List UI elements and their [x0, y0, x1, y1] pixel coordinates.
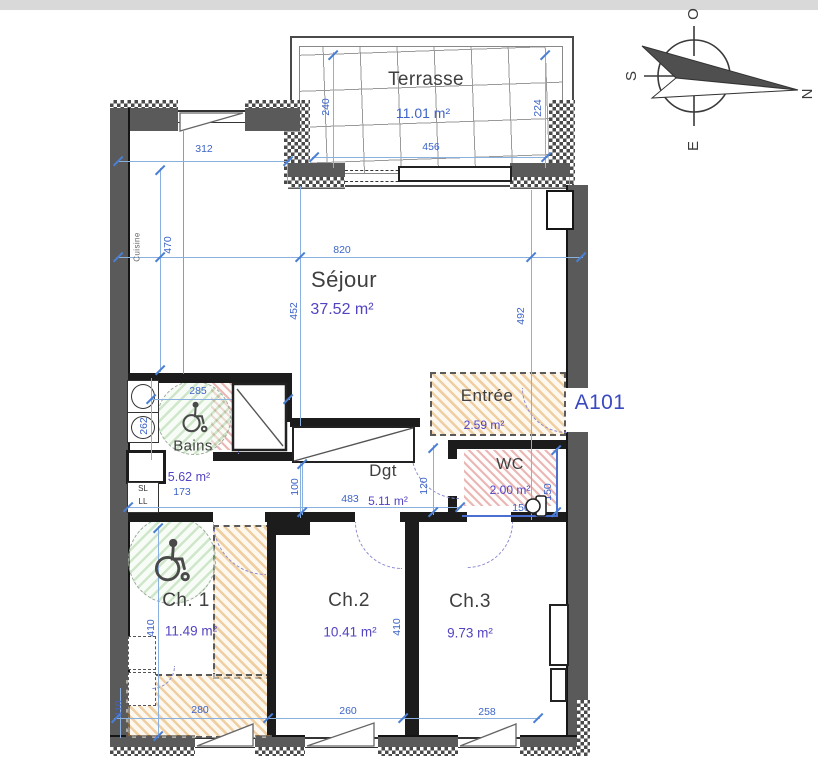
dim-483: 483	[341, 493, 359, 505]
south-window-1-glazing	[195, 737, 255, 748]
ch3-area: 9.73 m²	[447, 626, 493, 641]
dim-240: 240	[320, 98, 332, 116]
entree-label: Entrée	[461, 386, 514, 406]
wc-label: WC	[496, 456, 523, 474]
compass-north-label: N	[799, 89, 816, 100]
bay-right-stub-insulation	[510, 177, 570, 188]
ch1-label: Ch. 1	[162, 590, 209, 612]
compass-rose: O S E N	[612, 2, 818, 162]
ch3-niche	[550, 668, 567, 702]
wc-area: 2.00 m²	[490, 483, 531, 497]
laundry-closet: SL LL	[127, 482, 159, 513]
sliding-door-panel	[398, 166, 512, 182]
dim-line-483	[128, 507, 462, 508]
terrasse-area: 11.01 m²	[396, 105, 450, 121]
laundry-sl-label: SL	[128, 484, 158, 493]
ch2-pilaster	[274, 522, 310, 535]
bains-area: 5.62 m²	[168, 470, 210, 484]
dim-258: 258	[478, 706, 496, 718]
ch1-area: 11.49 m²	[165, 624, 217, 639]
ch2-area: 10.41 m²	[323, 625, 376, 640]
dim-820: 820	[333, 244, 351, 256]
bains-label: Bains	[173, 438, 213, 455]
dim-150-width: 150	[512, 502, 530, 514]
kitchen-appliance	[126, 450, 166, 484]
dim-line-262	[151, 378, 152, 460]
dim-285: 285	[189, 385, 207, 397]
dim-280: 280	[191, 704, 209, 716]
ch2-door-arc	[355, 522, 402, 569]
dim-line-452	[300, 186, 301, 518]
dim-line-bottom	[114, 718, 540, 719]
south-insulation-3	[378, 747, 458, 756]
ch1-closet-1	[128, 636, 156, 670]
dgt-closet-diagonal	[294, 428, 413, 461]
closet-north-wall	[290, 418, 420, 427]
sejour-area: 37.52 m²	[310, 301, 373, 319]
south-window-2-glazing	[305, 737, 378, 748]
dim-492: 492	[515, 307, 527, 325]
dim-224: 224	[532, 99, 544, 117]
floor-plan-canvas: SL LL 312 470 820 452 492 240 224 456 28…	[0, 0, 818, 768]
northeast-pillar	[546, 190, 574, 230]
dim-line-492	[531, 190, 532, 520]
compass-east-label: E	[685, 141, 702, 151]
dim-line-410-ch1	[158, 526, 159, 738]
bains-door-arc	[238, 407, 285, 454]
dim-410-ch2: 410	[391, 618, 403, 636]
north-window-glazing	[178, 110, 245, 123]
ch3-door-arc	[467, 522, 513, 568]
wc-north-wall	[448, 440, 566, 449]
dim-line-240	[333, 52, 334, 168]
dim-line-224	[545, 52, 546, 168]
dgt-closet	[293, 427, 414, 462]
dgt-area: 5.11 m²	[368, 494, 408, 508]
bay-left-stub-insulation	[288, 177, 345, 188]
entree-area: 2.59 m²	[464, 418, 505, 432]
ch1-ch2-partition	[267, 522, 276, 735]
terrasse-label: Terrasse	[388, 69, 464, 91]
corridor-wall-2	[265, 512, 355, 522]
dim-150-depth: 150	[542, 483, 554, 501]
dim-line-312	[118, 161, 290, 162]
sejour-label: Séjour	[311, 267, 377, 293]
dim-line-120	[433, 445, 434, 515]
dim-line-456	[312, 157, 548, 158]
east-wall-lower	[566, 432, 588, 745]
dgt-label: Dgt	[369, 461, 397, 481]
kitchen-counter-edge	[183, 131, 184, 374]
compass-south-label: S	[623, 71, 640, 81]
dim-line-470	[160, 168, 161, 372]
dim-262: 262	[138, 417, 150, 435]
dim-line-150h	[556, 448, 558, 515]
compass-west-label: O	[685, 8, 702, 20]
dim-line-100	[302, 462, 303, 515]
dim-120: 120	[418, 477, 430, 495]
north-wall-right	[245, 108, 300, 131]
south-insulation-1	[110, 747, 195, 756]
dim-410-ch1: 410	[145, 619, 157, 637]
dim-452: 452	[288, 302, 300, 320]
ch2-label: Ch.2	[328, 590, 370, 612]
south-insulation-2	[255, 747, 305, 756]
southeast-insulation-wrap	[577, 700, 590, 756]
dim-line-285	[152, 399, 290, 400]
dim-456: 456	[422, 141, 440, 153]
south-window-3-glazing	[458, 737, 520, 748]
dim-100: 100	[289, 478, 301, 496]
dim-line-820	[118, 257, 583, 258]
ch3-radiator	[549, 604, 569, 666]
dim-260: 260	[339, 705, 357, 717]
dim-line-150w	[462, 515, 558, 517]
dim-312: 312	[195, 143, 213, 155]
apartment-id-label: A101	[575, 391, 626, 415]
ch3-label: Ch.3	[449, 591, 491, 613]
dim-173: 173	[173, 486, 191, 498]
cuisine-label: Cuisine	[133, 232, 142, 261]
ch2-ch3-partition	[405, 522, 419, 735]
corridor-wall-1	[128, 512, 213, 522]
